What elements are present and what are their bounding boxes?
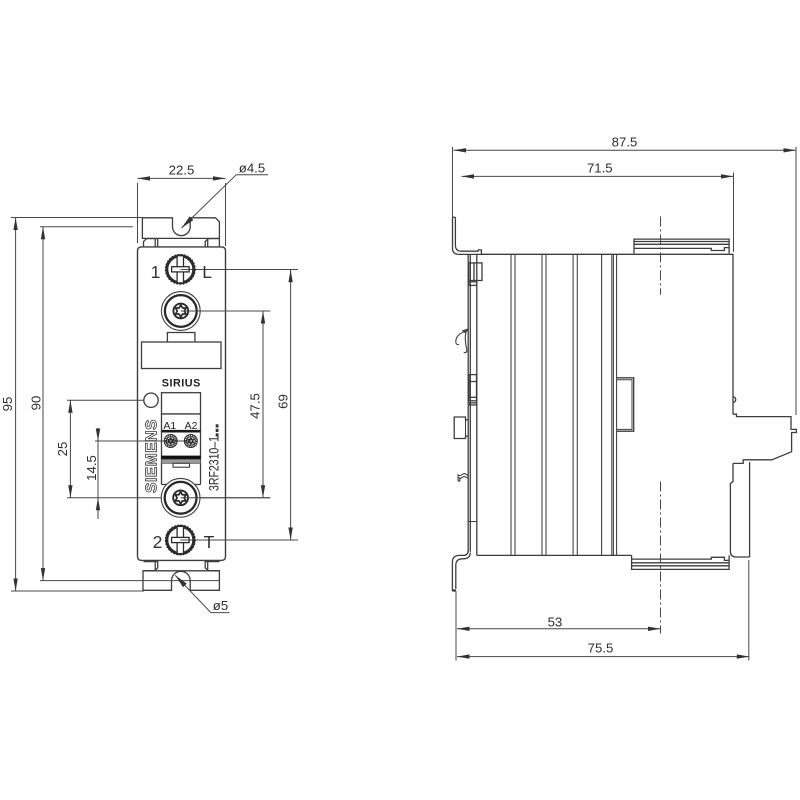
svg-text:69: 69: [276, 394, 291, 409]
svg-text:A2: A2: [185, 420, 198, 432]
svg-text:1: 1: [151, 262, 161, 282]
svg-text:75.5: 75.5: [588, 641, 614, 656]
svg-text:L: L: [202, 262, 212, 282]
svg-text:95: 95: [0, 397, 15, 412]
svg-text:90: 90: [29, 396, 44, 411]
svg-text:T: T: [204, 532, 215, 552]
svg-text:14.5: 14.5: [84, 455, 99, 481]
svg-text:25: 25: [55, 442, 70, 457]
svg-text:71.5: 71.5: [587, 161, 613, 176]
svg-text:ø4.5: ø4.5: [239, 160, 265, 175]
svg-text:3RF2310–1: 3RF2310–1: [206, 436, 221, 491]
svg-text:47.5: 47.5: [248, 393, 263, 419]
svg-text:SIEMENS: SIEMENS: [144, 419, 161, 493]
svg-text:ø5: ø5: [213, 598, 228, 613]
svg-text:22.5: 22.5: [169, 163, 195, 178]
svg-text:87.5: 87.5: [612, 134, 638, 149]
svg-text:2: 2: [153, 532, 163, 552]
svg-text:SIRIUS: SIRIUS: [162, 377, 201, 389]
svg-text:A1: A1: [163, 420, 176, 432]
svg-text:53: 53: [548, 615, 563, 630]
